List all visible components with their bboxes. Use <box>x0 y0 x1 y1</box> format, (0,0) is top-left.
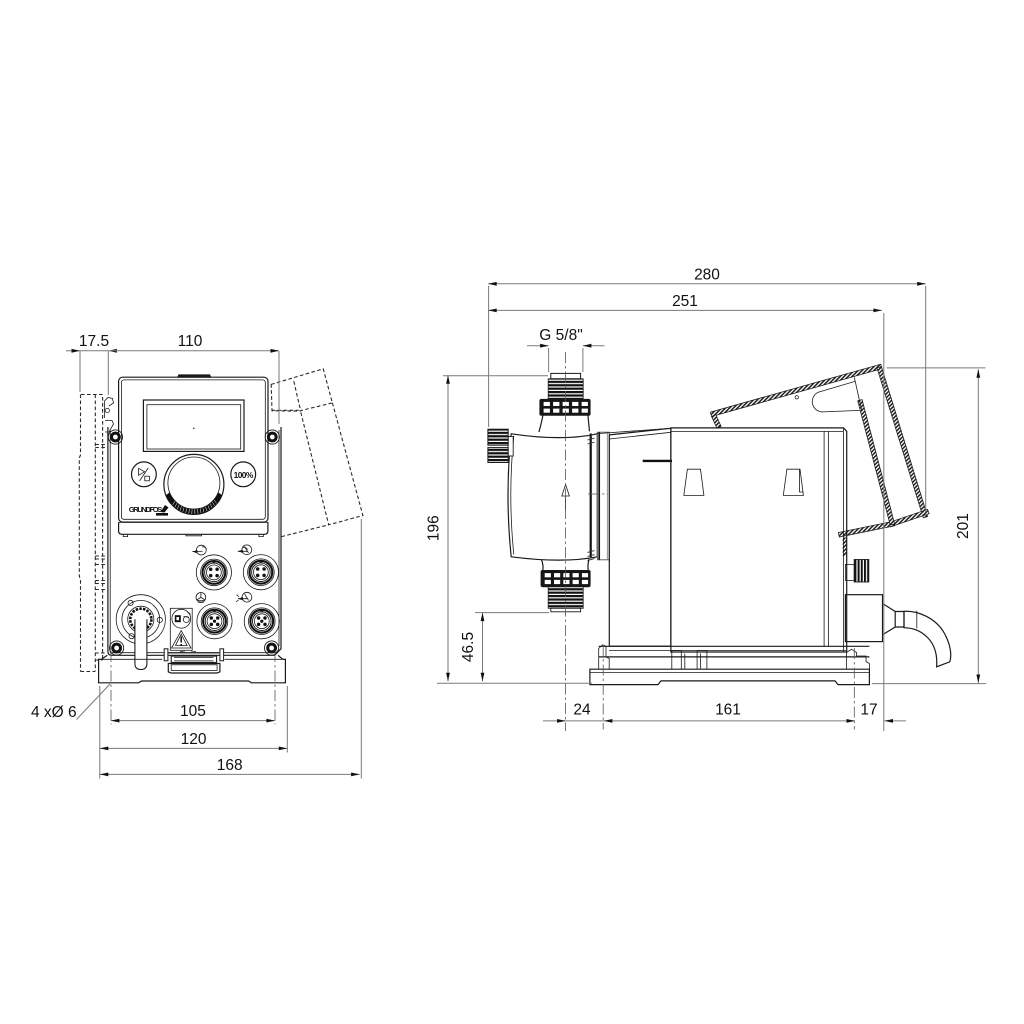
svg-text:17.5: 17.5 <box>79 333 109 350</box>
svg-text:G 5/8": G 5/8" <box>539 327 582 344</box>
svg-text:161: 161 <box>715 702 741 719</box>
svg-text:251: 251 <box>672 293 698 310</box>
svg-text:46.5: 46.5 <box>460 632 477 662</box>
svg-text:168: 168 <box>217 757 243 774</box>
svg-text:280: 280 <box>694 266 720 283</box>
svg-text:GRUNDFOS: GRUNDFOS <box>129 505 162 514</box>
svg-text:4 xØ 6: 4 xØ 6 <box>31 704 77 721</box>
svg-text:196: 196 <box>426 515 443 541</box>
svg-text:100%: 100% <box>234 470 254 480</box>
svg-text:24: 24 <box>573 702 591 719</box>
svg-text:201: 201 <box>955 513 972 539</box>
svg-text:110: 110 <box>178 333 203 350</box>
svg-text:17: 17 <box>860 702 877 719</box>
svg-text:105: 105 <box>180 703 206 720</box>
svg-text:120: 120 <box>181 731 207 748</box>
